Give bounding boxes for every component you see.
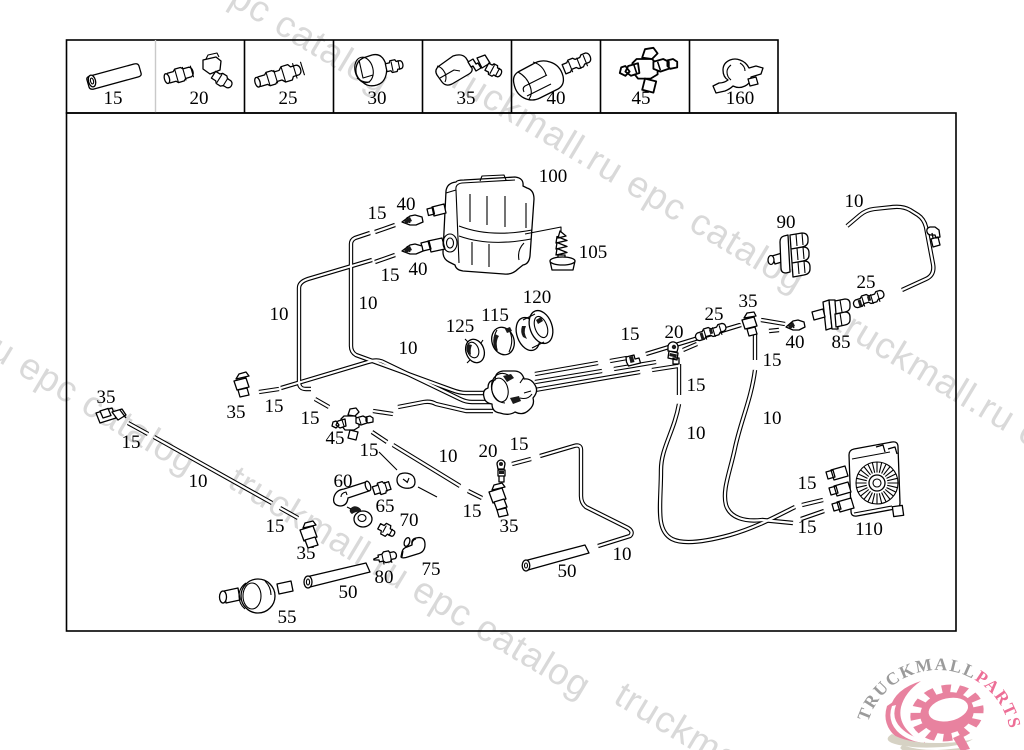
svg-text:100: 100: [539, 166, 568, 187]
svg-text:160: 160: [726, 88, 755, 109]
svg-text:105: 105: [579, 242, 608, 263]
svg-text:40: 40: [397, 194, 416, 215]
svg-text:15: 15: [266, 516, 285, 537]
svg-text:15: 15: [510, 434, 529, 455]
svg-text:10: 10: [189, 471, 208, 492]
svg-text:50: 50: [339, 582, 358, 603]
svg-text:10: 10: [359, 293, 378, 314]
svg-text:25: 25: [279, 88, 298, 109]
svg-text:45: 45: [326, 428, 345, 449]
svg-text:10: 10: [613, 544, 632, 565]
svg-text:35: 35: [739, 291, 758, 312]
svg-text:15: 15: [301, 408, 320, 429]
svg-text:15: 15: [763, 350, 782, 371]
svg-text:20: 20: [190, 88, 209, 109]
svg-text:15: 15: [687, 375, 706, 396]
svg-text:85: 85: [832, 332, 851, 353]
svg-text:35: 35: [500, 516, 519, 537]
svg-text:25: 25: [705, 304, 724, 325]
svg-text:115: 115: [481, 305, 509, 326]
svg-text:15: 15: [798, 473, 817, 494]
svg-text:75: 75: [422, 559, 441, 580]
svg-text:15: 15: [621, 324, 640, 345]
svg-text:15: 15: [798, 517, 817, 538]
svg-text:10: 10: [439, 446, 458, 467]
svg-text:15: 15: [368, 203, 387, 224]
svg-text:90: 90: [777, 212, 796, 233]
svg-text:110: 110: [855, 519, 883, 540]
svg-text:10: 10: [270, 304, 289, 325]
svg-text:10: 10: [763, 408, 782, 429]
svg-text:80: 80: [375, 567, 394, 588]
svg-text:50: 50: [558, 561, 577, 582]
svg-text:25: 25: [857, 272, 876, 293]
svg-text:65: 65: [376, 496, 395, 517]
svg-text:15: 15: [381, 265, 400, 286]
svg-text:120: 120: [523, 287, 552, 308]
svg-text:35: 35: [457, 88, 476, 109]
svg-text:10: 10: [399, 338, 418, 359]
svg-text:70: 70: [400, 510, 419, 531]
svg-text:40: 40: [786, 332, 805, 353]
svg-text:15: 15: [360, 440, 379, 461]
svg-text:15: 15: [104, 88, 123, 109]
svg-text:10: 10: [845, 191, 864, 212]
svg-text:30: 30: [368, 88, 387, 109]
svg-text:15: 15: [463, 501, 482, 522]
svg-text:125: 125: [446, 316, 475, 337]
svg-text:35: 35: [97, 387, 116, 408]
svg-text:15: 15: [122, 432, 141, 453]
svg-text:20: 20: [479, 441, 498, 462]
svg-text:35: 35: [227, 402, 246, 423]
svg-text:55: 55: [278, 607, 297, 628]
svg-text:15: 15: [265, 396, 284, 417]
svg-text:20: 20: [665, 322, 684, 343]
svg-text:10: 10: [687, 423, 706, 444]
svg-text:40: 40: [409, 259, 428, 280]
